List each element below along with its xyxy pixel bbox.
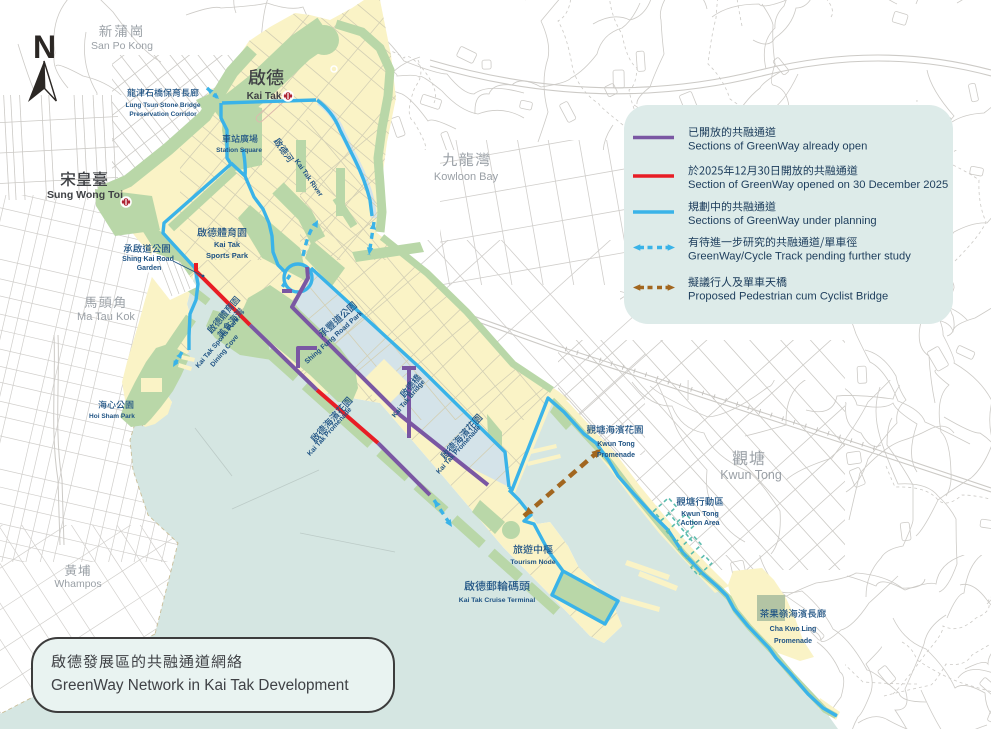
svg-text:Proposed Pedestrian cum Cyclis: Proposed Pedestrian cum Cyclist Bridge	[688, 291, 888, 303]
svg-text:Tourism Node: Tourism Node	[510, 559, 555, 566]
svg-text:Sections of GreenWay already o: Sections of GreenWay already open	[688, 141, 867, 153]
svg-text:Promenade: Promenade	[774, 638, 812, 645]
svg-text:Kowloon Bay: Kowloon Bay	[434, 171, 499, 183]
svg-text:Section of GreenWay opened on: Section of GreenWay opened on 30 Decembe…	[688, 179, 948, 191]
svg-text:Cha Kwo Ling: Cha Kwo Ling	[770, 626, 817, 633]
svg-text:Sports Park: Sports Park	[206, 251, 249, 260]
svg-text:N: N	[33, 29, 56, 65]
svg-text:Garden: Garden	[137, 265, 162, 272]
svg-text:Hoi Sham Park: Hoi Sham Park	[89, 413, 135, 420]
svg-text:Ma Tau Kok: Ma Tau Kok	[77, 311, 135, 323]
svg-text:Promenade: Promenade	[597, 452, 635, 459]
svg-text:Action Area: Action Area	[680, 520, 719, 527]
svg-text:Station Square: Station Square	[216, 147, 262, 154]
svg-text:GreenWay/Cycle Track pending f: GreenWay/Cycle Track pending further stu…	[688, 251, 911, 263]
svg-text:San Po Kong: San Po Kong	[91, 40, 153, 52]
svg-text:Sections of GreenWay under pla: Sections of GreenWay under planning	[688, 215, 877, 227]
svg-text:Kwun Tong: Kwun Tong	[681, 511, 719, 518]
svg-text:Kai Tak Cruise Terminal: Kai Tak Cruise Terminal	[459, 597, 536, 604]
svg-text:Preservation Corridor: Preservation Corridor	[129, 111, 197, 118]
svg-text:Kwun Tong: Kwun Tong	[720, 468, 782, 482]
svg-text:Lung Tsun Stone Bridge: Lung Tsun Stone Bridge	[126, 102, 201, 109]
svg-text:Kwun Tong: Kwun Tong	[597, 441, 635, 448]
svg-text:Whampos: Whampos	[54, 578, 101, 590]
svg-text:GreenWay Network in Kai Tak De: GreenWay Network in Kai Tak Development	[51, 677, 349, 694]
svg-text:Shing Kai Road: Shing Kai Road	[122, 256, 174, 263]
svg-text:Sung Wong Toi: Sung Wong Toi	[47, 189, 123, 201]
svg-text:Kai Tak: Kai Tak	[214, 240, 241, 249]
svg-text:Kai Tak: Kai Tak	[247, 91, 282, 102]
